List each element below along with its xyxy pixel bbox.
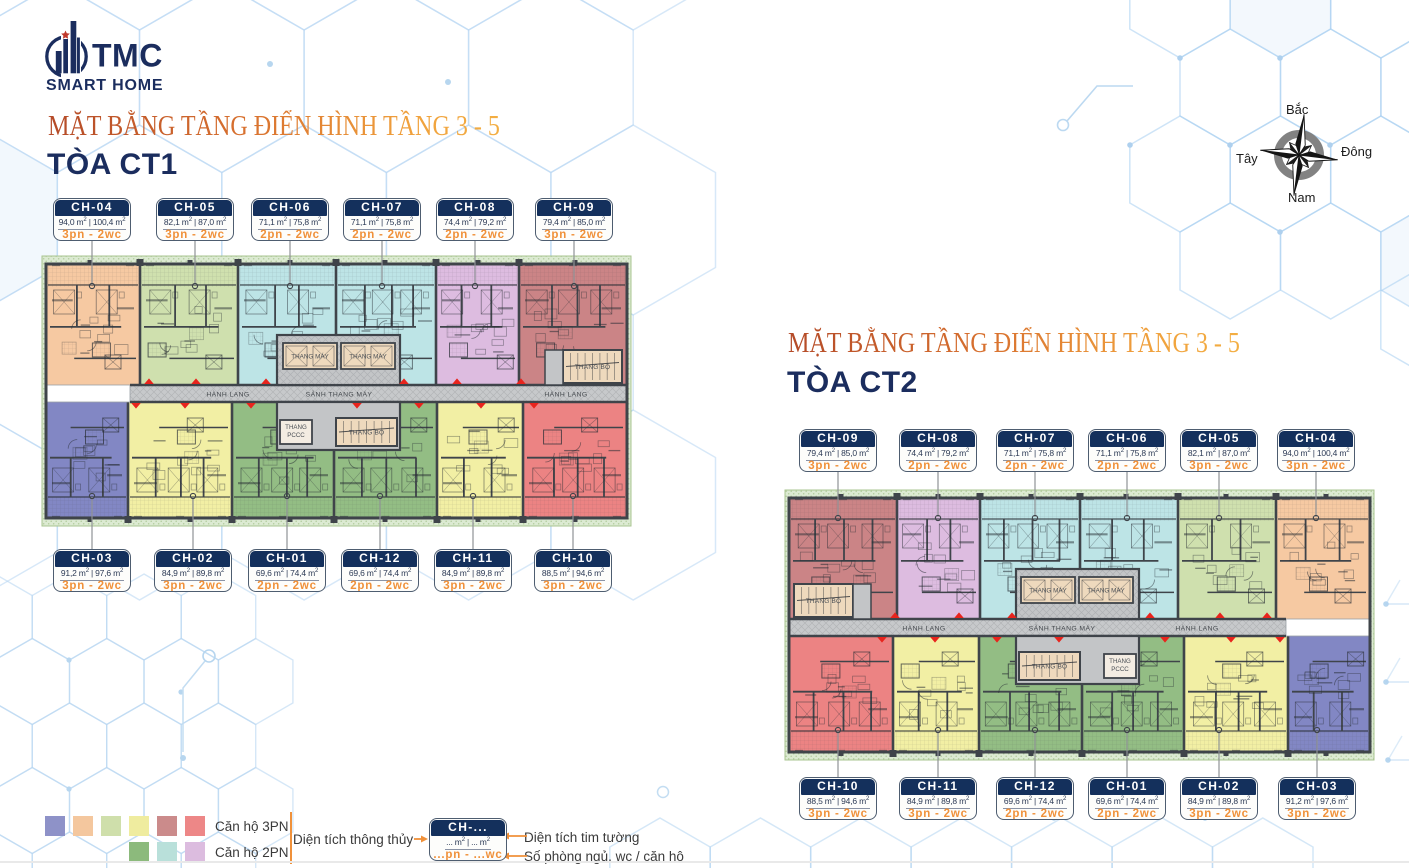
svg-text:THANG: THANG xyxy=(1109,658,1131,665)
svg-text:HÀNH LANG: HÀNH LANG xyxy=(544,390,587,399)
svg-text:SMART HOME: SMART HOME xyxy=(46,77,163,94)
svg-text:THANG MÁY: THANG MÁY xyxy=(291,352,329,361)
svg-text:SẢNH THANG MÁY: SẢNH THANG MÁY xyxy=(306,390,373,399)
svg-text:THANG MÁY: THANG MÁY xyxy=(1087,586,1125,595)
svg-text:THANG BỘ: THANG BỘ xyxy=(575,362,611,371)
svg-text:THANG BỘ: THANG BỘ xyxy=(1032,662,1068,671)
svg-text:THANG BỘ: THANG BỘ xyxy=(349,428,385,437)
svg-text:THANG MÁY: THANG MÁY xyxy=(349,352,387,361)
svg-text:SẢNH THANG MÁY: SẢNH THANG MÁY xyxy=(1029,624,1096,633)
svg-text:HÀNH LANG: HÀNH LANG xyxy=(206,390,249,399)
svg-text:THANG MÁY: THANG MÁY xyxy=(1029,586,1067,595)
svg-text:PCCC: PCCC xyxy=(1111,666,1129,673)
svg-text:THANG: THANG xyxy=(285,424,307,431)
svg-text:THANG BỘ: THANG BỘ xyxy=(806,596,842,605)
svg-text:PCCC: PCCC xyxy=(287,432,305,439)
svg-text:HÀNH LANG: HÀNH LANG xyxy=(902,624,945,633)
svg-text:TMC: TMC xyxy=(92,38,163,74)
svg-text:HÀNH LANG: HÀNH LANG xyxy=(1175,624,1218,633)
